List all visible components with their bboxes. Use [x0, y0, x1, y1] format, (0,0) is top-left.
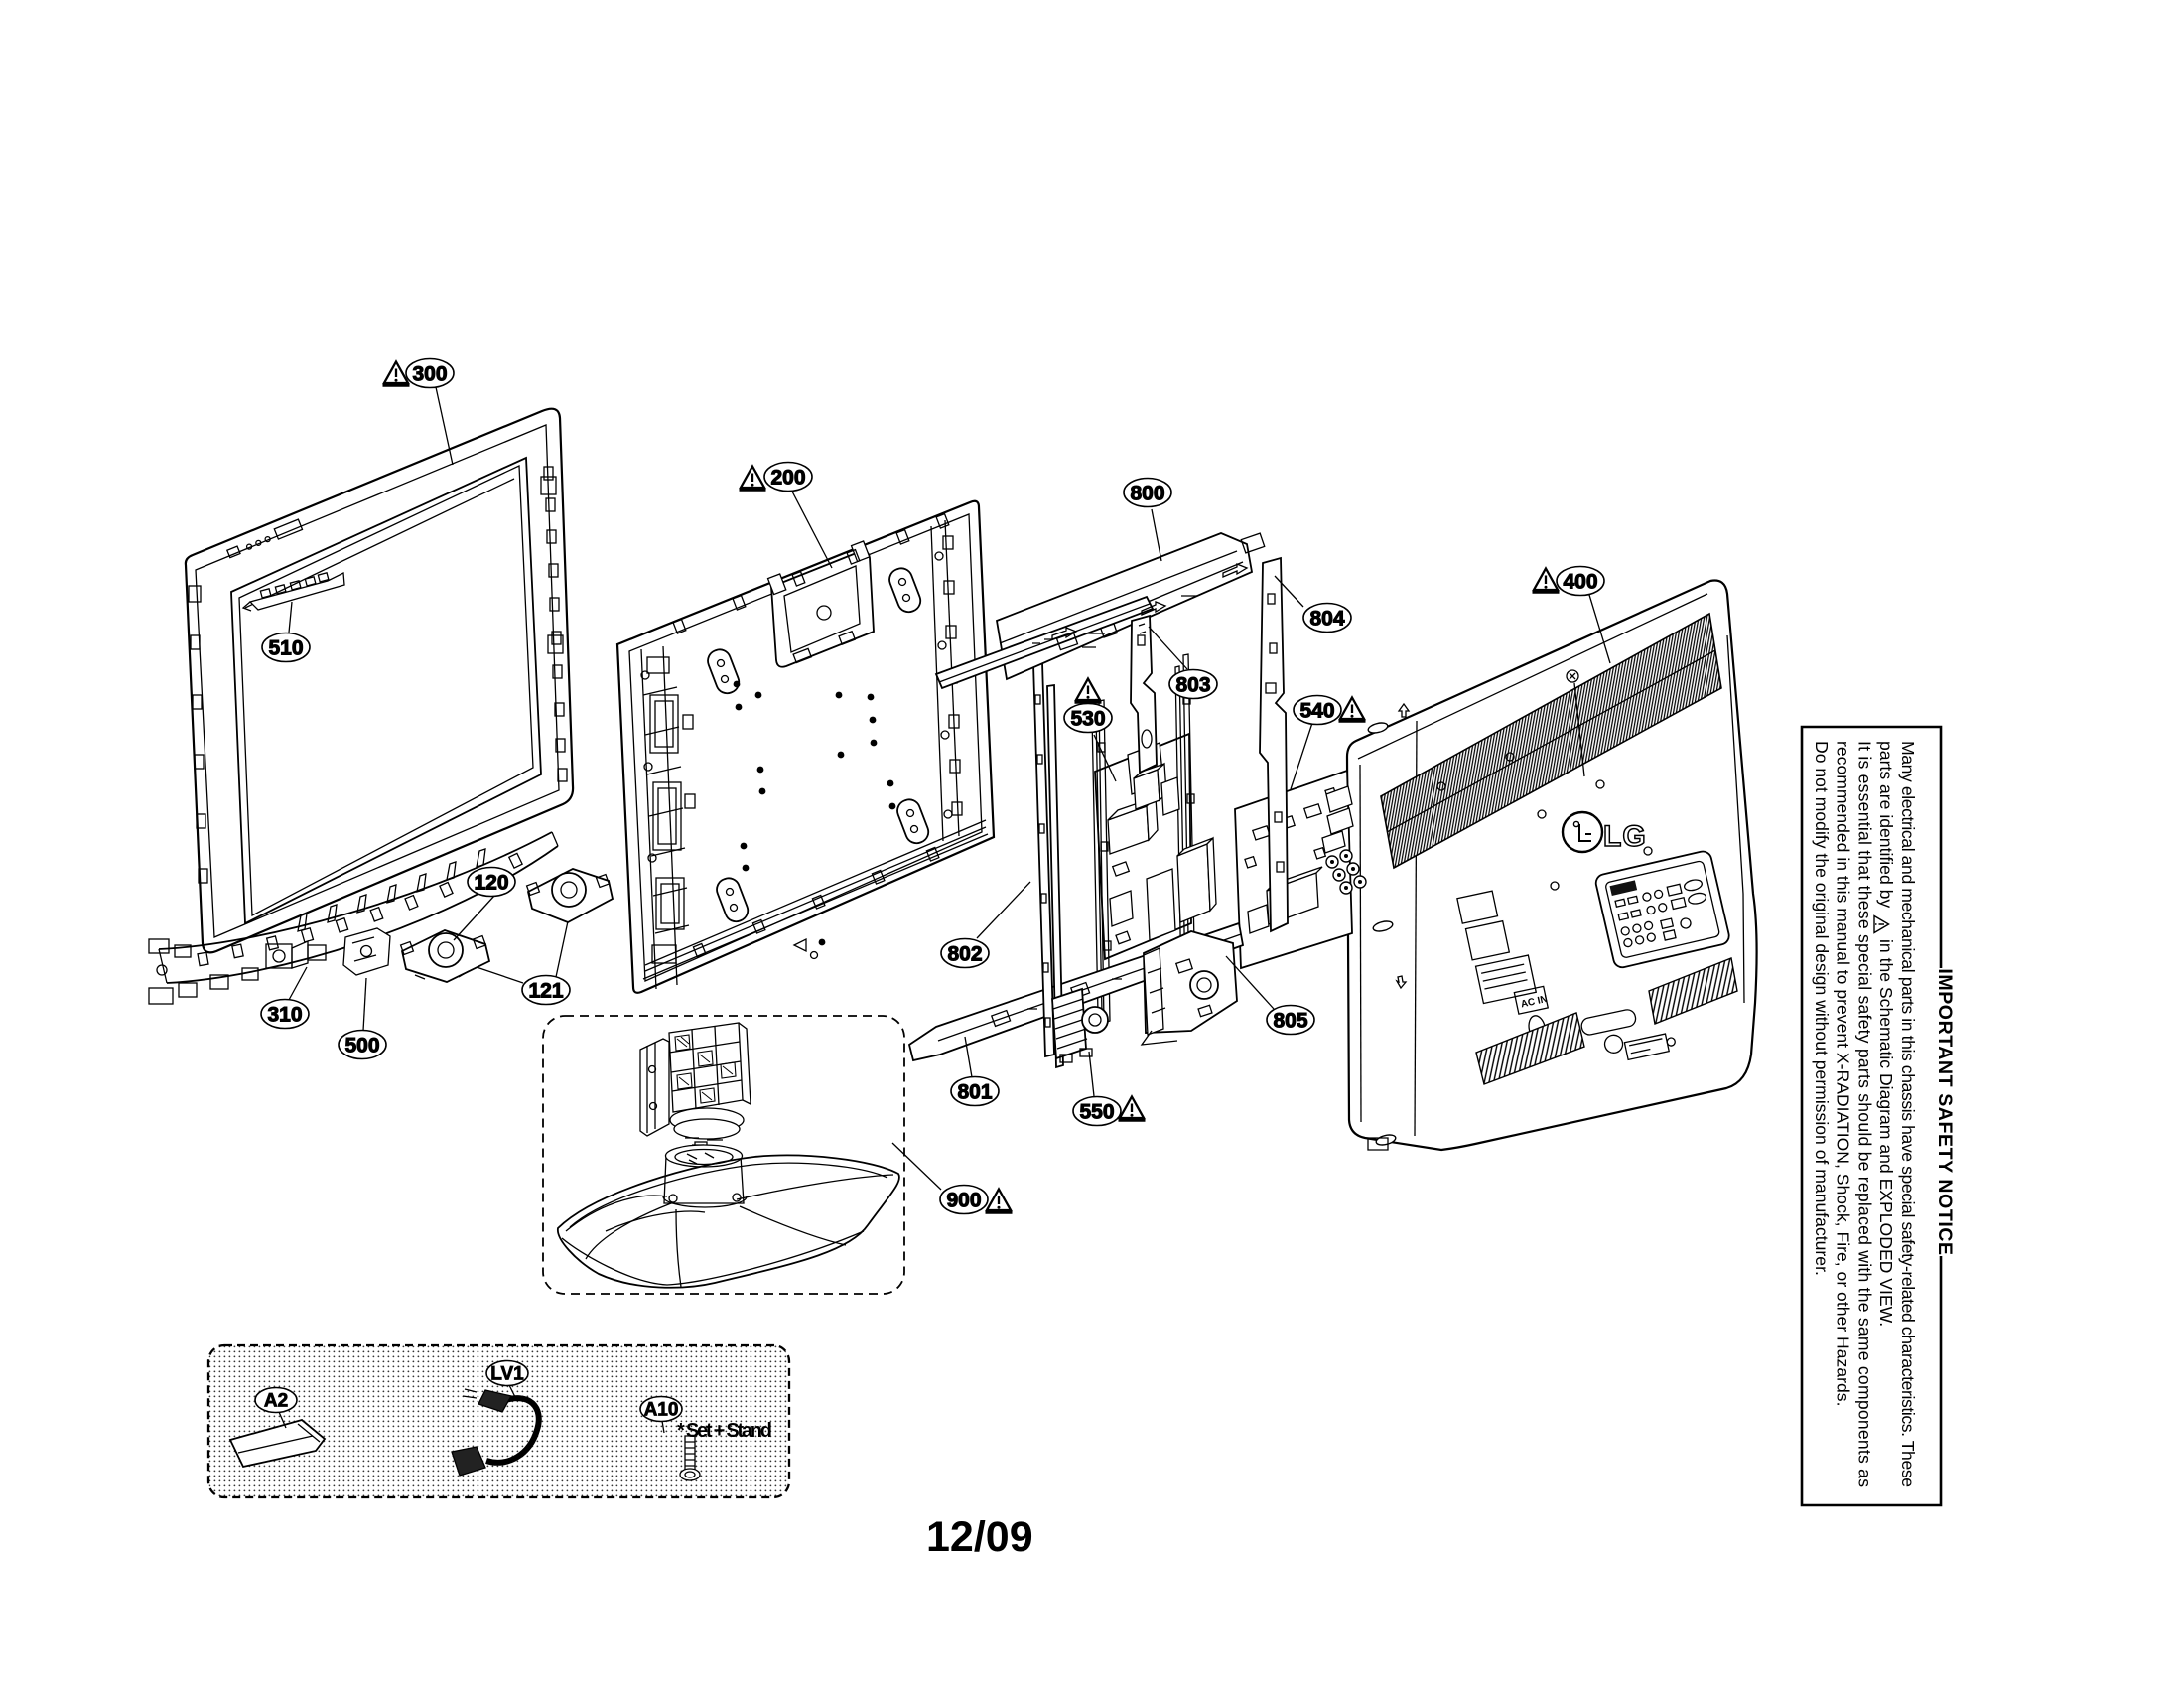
svg-text:LG: LG	[1603, 820, 1647, 853]
svg-text:300: 300	[412, 363, 447, 386]
svg-text:804: 804	[1309, 608, 1344, 631]
svg-text:200: 200	[770, 467, 805, 490]
svg-text:121: 121	[528, 980, 563, 1003]
svg-text:802: 802	[947, 943, 982, 966]
svg-text:LV1: LV1	[490, 1364, 524, 1385]
svg-text:530: 530	[1070, 708, 1105, 731]
svg-text:IMPORTANT SAFETY NOTICE: IMPORTANT SAFETY NOTICE	[1934, 968, 1956, 1255]
svg-text:A2: A2	[264, 1391, 288, 1412]
svg-text:in the Schematic Diagram and E: in the Schematic Diagram and EXPLODED VI…	[1876, 939, 1896, 1327]
svg-text:540: 540	[1299, 700, 1334, 723]
svg-text:A10: A10	[644, 1400, 679, 1421]
svg-text:It is essential that these spe: It is essential that these special safet…	[1854, 741, 1874, 1487]
svg-text:550: 550	[1079, 1101, 1114, 1124]
svg-text:120: 120	[474, 872, 508, 895]
svg-text:510: 510	[268, 637, 303, 660]
svg-text:parts are identified by: parts are identified by	[1876, 741, 1896, 908]
svg-text:12/09: 12/09	[926, 1513, 1033, 1561]
svg-text:805: 805	[1273, 1010, 1307, 1033]
svg-text:400: 400	[1563, 571, 1597, 594]
svg-text:800: 800	[1130, 483, 1164, 505]
svg-text:801: 801	[957, 1081, 992, 1104]
svg-text:Do not modify the original des: Do not modify the original design withou…	[1812, 741, 1832, 1276]
svg-text:500: 500	[344, 1035, 379, 1057]
svg-text:* Set + Stand: * Set + Stand	[677, 1420, 772, 1442]
svg-text:310: 310	[267, 1004, 302, 1027]
svg-text:Many electrical and mechanical: Many electrical and mechanical parts in …	[1898, 741, 1918, 1487]
svg-text:900: 900	[946, 1190, 981, 1212]
svg-text:recommended in this manual to: recommended in this manual to prevent X-…	[1834, 741, 1853, 1406]
svg-text:803: 803	[1175, 674, 1210, 697]
